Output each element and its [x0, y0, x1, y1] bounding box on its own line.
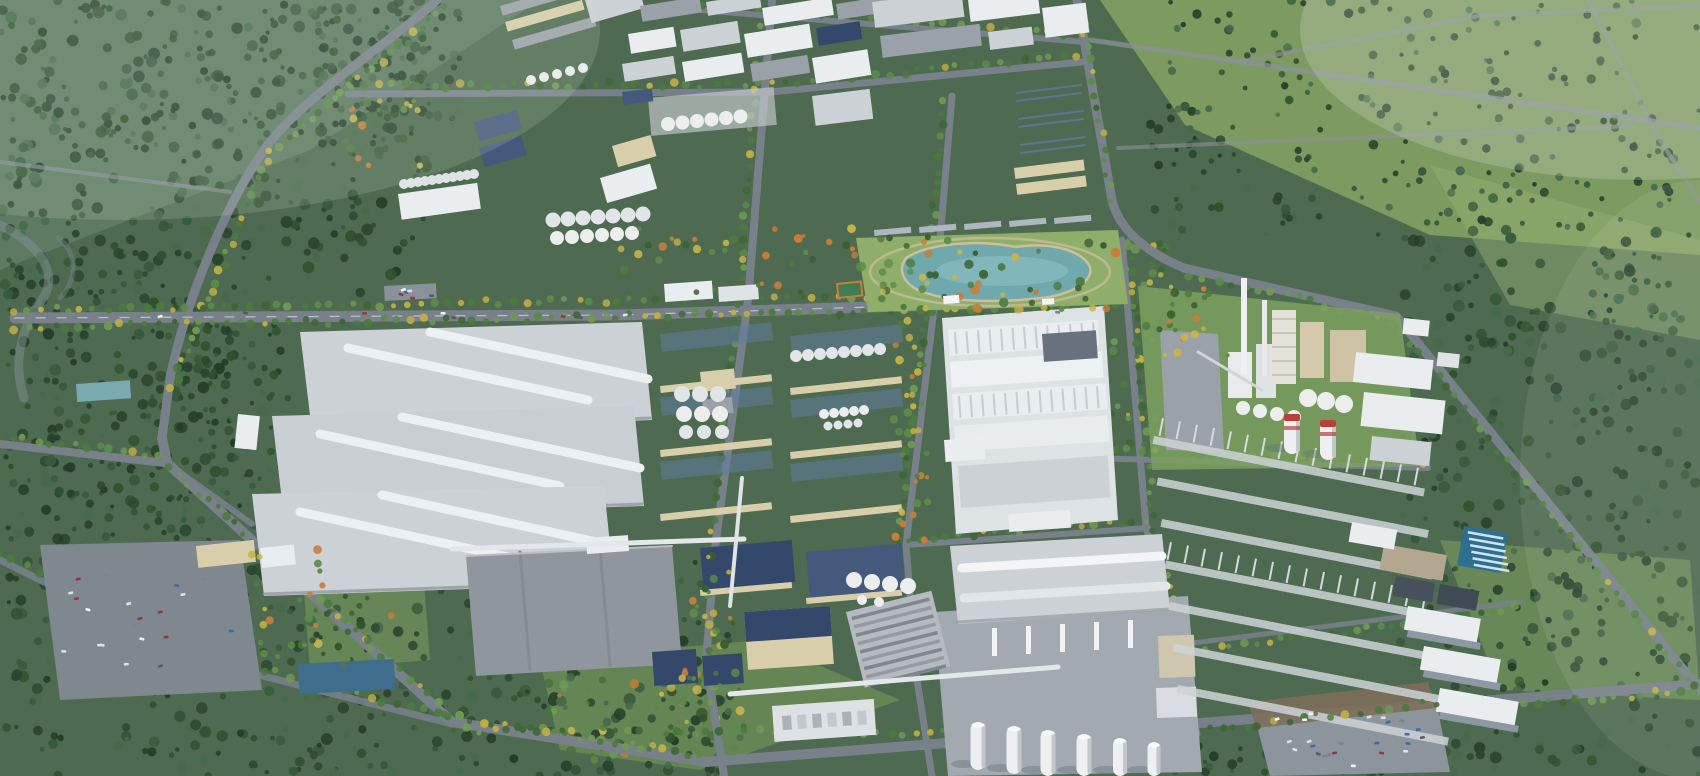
- 55: [593, 82, 599, 88]
- 95: [715, 727, 724, 736]
- 14: [45, 441, 52, 448]
- 50: [1254, 287, 1261, 294]
- 2: [857, 595, 867, 605]
- 16: [1107, 198, 1112, 203]
- 48: [222, 249, 228, 255]
- 85: [54, 323, 60, 329]
- 34: [307, 592, 313, 598]
- 260: [74, 491, 79, 496]
- 30: [890, 415, 898, 423]
- 40: [919, 339, 927, 347]
- 40: [932, 211, 940, 219]
- 13: [1434, 702, 1439, 707]
- 36: [272, 667, 278, 673]
- 40: [901, 499, 906, 504]
- 120: [181, 517, 187, 523]
- 50: [1407, 341, 1414, 348]
- 3: [692, 386, 708, 402]
- 380: [1464, 245, 1476, 257]
- 16: [1108, 182, 1114, 188]
- 60: [904, 243, 910, 249]
- 260: [198, 437, 204, 443]
- 430: [447, 626, 454, 633]
- 120: [245, 469, 253, 477]
- 430: [314, 762, 322, 770]
- 52: [612, 742, 618, 748]
- 120: [165, 333, 172, 340]
- 120: [211, 369, 216, 374]
- 85: [795, 309, 802, 316]
- 230: [1232, 152, 1236, 156]
- 34: [313, 623, 318, 628]
- 85: [391, 303, 396, 308]
- 430: [142, 748, 148, 754]
- 120: [148, 398, 158, 408]
- 55: [584, 701, 590, 707]
- 430: [414, 631, 419, 636]
- 34: [1135, 328, 1140, 333]
- 380: [1527, 623, 1538, 634]
- 95: [741, 727, 748, 734]
- 36: [368, 694, 376, 702]
- 60: [998, 263, 1006, 271]
- 95: [493, 726, 499, 732]
- 230: [1424, 219, 1431, 226]
- 420: [134, 270, 143, 279]
- 22: [1173, 328, 1178, 333]
- 36: [377, 698, 385, 706]
- 260: [128, 435, 139, 446]
- 40: [908, 441, 916, 449]
- 55: [747, 177, 752, 182]
- car: [1332, 751, 1337, 754]
- stack-shade: [1052, 732, 1056, 774]
- 6: [661, 117, 675, 131]
- 85: [836, 311, 845, 320]
- 85: [524, 318, 530, 324]
- 430: [264, 686, 274, 696]
- 430: [403, 691, 409, 697]
- 120: [233, 455, 239, 461]
- 430: [7, 600, 11, 604]
- 430: [412, 603, 423, 614]
- 260: [45, 455, 56, 466]
- 55: [739, 223, 747, 231]
- 80: [1227, 759, 1237, 769]
- 16: [1095, 118, 1100, 123]
- 40: [902, 484, 909, 491]
- 30: [910, 428, 916, 434]
- 85: [585, 298, 593, 306]
- 36: [762, 252, 770, 260]
- 55: [748, 164, 753, 169]
- 55: [1036, 55, 1043, 62]
- 52: [222, 512, 231, 521]
- 85: [771, 293, 778, 300]
- 20: [1128, 519, 1135, 526]
- 34: [319, 582, 325, 588]
- 85: [76, 306, 83, 313]
- 230: [1175, 203, 1183, 211]
- 420: [138, 251, 149, 262]
- 8: [790, 350, 802, 362]
- 230: [1376, 232, 1380, 236]
- 26: [687, 676, 692, 681]
- 230: [1243, 86, 1248, 91]
- 430: [335, 643, 343, 651]
- 48: [209, 288, 217, 296]
- 20: [941, 533, 948, 540]
- 55: [630, 679, 639, 688]
- 430: [357, 749, 367, 759]
- 34: [317, 568, 322, 573]
- 430: [310, 751, 318, 759]
- 260: [81, 352, 92, 363]
- 230: [1174, 25, 1181, 32]
- 380: [1487, 338, 1496, 347]
- 34: [341, 662, 347, 668]
- 430: [338, 702, 349, 713]
- 5: [1060, 624, 1065, 652]
- 36: [709, 249, 716, 256]
- 85: [861, 308, 867, 314]
- 34: [380, 641, 387, 648]
- 430: [276, 736, 286, 746]
- block: [1300, 322, 1324, 378]
- 55: [783, 79, 789, 85]
- 260: [161, 530, 166, 535]
- 55: [982, 60, 990, 68]
- 85: [38, 326, 44, 332]
- 50: [1485, 434, 1492, 441]
- 85: [784, 294, 789, 299]
- 34: [349, 610, 355, 616]
- 430: [696, 708, 708, 720]
- 4: [1270, 407, 1284, 421]
- 85: [458, 300, 464, 306]
- 380: [1493, 499, 1504, 510]
- 80: [1209, 751, 1219, 761]
- 95: [889, 730, 897, 738]
- 85: [246, 320, 255, 329]
- 430: [150, 701, 157, 708]
- 34: [1136, 380, 1141, 385]
- 52: [397, 665, 404, 672]
- 36: [645, 242, 652, 249]
- 55: [630, 719, 634, 723]
- 230: [1209, 158, 1215, 164]
- 430: [13, 576, 19, 582]
- 430: [474, 761, 479, 766]
- 30: [910, 511, 917, 518]
- 34: [260, 650, 268, 658]
- 420: [371, 223, 376, 228]
- 4: [1236, 401, 1250, 415]
- 230: [1520, 221, 1525, 226]
- 85: [303, 316, 310, 323]
- 34: [364, 636, 372, 644]
- 380: [1468, 226, 1479, 237]
- 14: [104, 444, 113, 453]
- 55: [566, 746, 576, 756]
- 260: [107, 462, 115, 470]
- 430: [296, 624, 304, 632]
- 260: [55, 346, 59, 350]
- 5: [1272, 360, 1296, 362]
- 120: [250, 401, 254, 405]
- 7: [606, 209, 621, 224]
- 40: [938, 111, 944, 117]
- 230: [1193, 136, 1197, 140]
- 52: [527, 724, 534, 731]
- 20: [906, 538, 911, 543]
- 55: [746, 150, 754, 158]
- 85: [209, 319, 215, 325]
- 40: [920, 327, 926, 333]
- 430: [147, 747, 156, 756]
- 60: [906, 259, 915, 268]
- 95: [702, 728, 710, 736]
- 16: [1087, 77, 1095, 85]
- 3: [1317, 392, 1335, 410]
- 260: [113, 411, 117, 415]
- 260: [220, 488, 225, 493]
- 52: [335, 613, 341, 619]
- 30: [914, 480, 918, 484]
- 380: [1535, 259, 1545, 269]
- 430: [283, 727, 289, 733]
- 36: [798, 290, 803, 295]
- 52: [696, 753, 702, 759]
- 85: [106, 308, 112, 314]
- 85: [826, 309, 832, 315]
- 260: [4, 454, 9, 459]
- 260: [66, 348, 76, 358]
- 430: [701, 737, 711, 747]
- 85: [172, 319, 177, 324]
- 260: [52, 378, 59, 385]
- 30: [920, 402, 925, 407]
- 20: [1079, 523, 1085, 529]
- 14: [128, 447, 136, 455]
- 260: [174, 535, 180, 541]
- 95: [1207, 725, 1213, 731]
- 430: [319, 635, 323, 639]
- 230: [1208, 204, 1215, 211]
- 430: [270, 736, 275, 741]
- 120: [188, 393, 195, 400]
- 55: [1060, 51, 1069, 60]
- 16: [1090, 93, 1097, 100]
- 85: [731, 310, 737, 316]
- 430: [368, 763, 374, 769]
- 85: [231, 303, 238, 310]
- 430: [371, 623, 380, 632]
- 48: [236, 221, 242, 227]
- 380: [1462, 732, 1471, 741]
- 260: [55, 487, 64, 496]
- 85: [495, 301, 502, 308]
- 34: [1149, 478, 1156, 485]
- 60: [957, 249, 962, 254]
- 230: [1168, 60, 1172, 64]
- 55: [739, 275, 745, 281]
- 430: [16, 595, 27, 606]
- 430: [571, 765, 581, 775]
- 120: [270, 371, 279, 380]
- 230: [1295, 147, 1302, 154]
- 36: [826, 239, 833, 246]
- 80: [1213, 756, 1217, 760]
- 420: [376, 197, 387, 208]
- 380: [1443, 283, 1452, 292]
- 430: [11, 673, 19, 681]
- 120: [214, 353, 218, 357]
- 22: [1156, 326, 1162, 332]
- 85: [534, 312, 543, 321]
- 55: [559, 680, 568, 689]
- 55: [659, 692, 664, 697]
- 420: [354, 198, 362, 206]
- retention-pond: [298, 659, 395, 694]
- 85: [578, 297, 584, 303]
- 420: [0, 279, 10, 290]
- 260: [9, 536, 14, 541]
- 26: [1033, 27, 1039, 33]
- 60: [884, 259, 893, 268]
- 55: [739, 212, 747, 220]
- 230: [1316, 213, 1323, 220]
- 34: [314, 560, 322, 568]
- car: [1055, 311, 1060, 314]
- 22: [1163, 353, 1167, 357]
- 85: [393, 316, 400, 323]
- 28: [1511, 602, 1519, 610]
- 60: [1029, 300, 1035, 306]
- 380: [1400, 289, 1411, 300]
- 52: [577, 737, 583, 743]
- 22: [1206, 291, 1213, 298]
- car: [362, 312, 367, 315]
- 230: [1281, 204, 1291, 214]
- 30: [903, 455, 909, 461]
- 230: [1174, 197, 1179, 202]
- block: [652, 649, 698, 686]
- 6: [842, 711, 852, 726]
- 420: [400, 239, 408, 247]
- 60: [919, 285, 927, 293]
- 8: [838, 346, 850, 358]
- 60: [1014, 304, 1024, 314]
- 420: [303, 262, 315, 274]
- 34: [248, 551, 256, 559]
- 120: [149, 472, 155, 478]
- 95: [624, 727, 631, 734]
- 85: [375, 303, 384, 312]
- 85: [718, 312, 723, 317]
- block: [1158, 635, 1195, 678]
- 230: [1477, 215, 1486, 224]
- 3: [697, 425, 711, 439]
- 380: [1474, 274, 1479, 279]
- 55: [743, 83, 749, 89]
- 60: [921, 239, 927, 245]
- 55: [544, 679, 553, 688]
- 230: [1178, 226, 1186, 234]
- 430: [321, 652, 325, 656]
- 230: [1167, 219, 1176, 228]
- 60: [1075, 285, 1082, 292]
- 34: [1134, 354, 1139, 359]
- 40: [934, 179, 941, 186]
- 120: [242, 356, 246, 360]
- block: [718, 284, 759, 302]
- 36: [692, 237, 697, 242]
- 6: [857, 710, 867, 725]
- 260: [43, 328, 54, 339]
- 120: [151, 329, 155, 333]
- 52: [588, 735, 595, 742]
- 120: [166, 496, 172, 502]
- 28: [1497, 608, 1504, 615]
- 260: [110, 505, 114, 509]
- 55: [580, 84, 586, 90]
- 420: [361, 206, 370, 215]
- 380: [1454, 521, 1460, 527]
- 6: [719, 111, 733, 125]
- 26: [678, 578, 684, 584]
- 13: [1375, 706, 1383, 714]
- 230: [1250, 47, 1256, 53]
- 60: [1148, 269, 1157, 278]
- 430: [566, 673, 575, 682]
- 14: [82, 443, 91, 452]
- 420: [66, 221, 71, 226]
- 26: [679, 675, 686, 682]
- 430: [343, 732, 350, 739]
- 120: [225, 375, 229, 379]
- 55: [670, 78, 679, 87]
- 34: [1130, 304, 1136, 310]
- 26: [706, 650, 712, 656]
- 120: [258, 406, 268, 416]
- 4: [882, 576, 898, 592]
- 85: [340, 303, 346, 309]
- 230: [1226, 50, 1233, 57]
- 420: [393, 246, 402, 255]
- 26: [702, 614, 708, 620]
- 430: [281, 695, 288, 702]
- 85: [483, 318, 489, 324]
- 6: [625, 226, 639, 240]
- 3: [710, 386, 726, 402]
- 430: [29, 698, 36, 705]
- stack-top: [1008, 727, 1021, 732]
- 260: [128, 369, 138, 379]
- 420: [356, 288, 366, 298]
- 55: [1072, 53, 1080, 61]
- 80: [1261, 769, 1268, 776]
- 230: [1406, 183, 1411, 188]
- 120: [269, 426, 273, 430]
- 120: [272, 326, 281, 335]
- 20: [1119, 522, 1125, 528]
- 430: [251, 735, 258, 742]
- 230: [1352, 186, 1357, 191]
- 430: [736, 734, 743, 741]
- 26: [731, 621, 735, 625]
- 55: [679, 699, 686, 706]
